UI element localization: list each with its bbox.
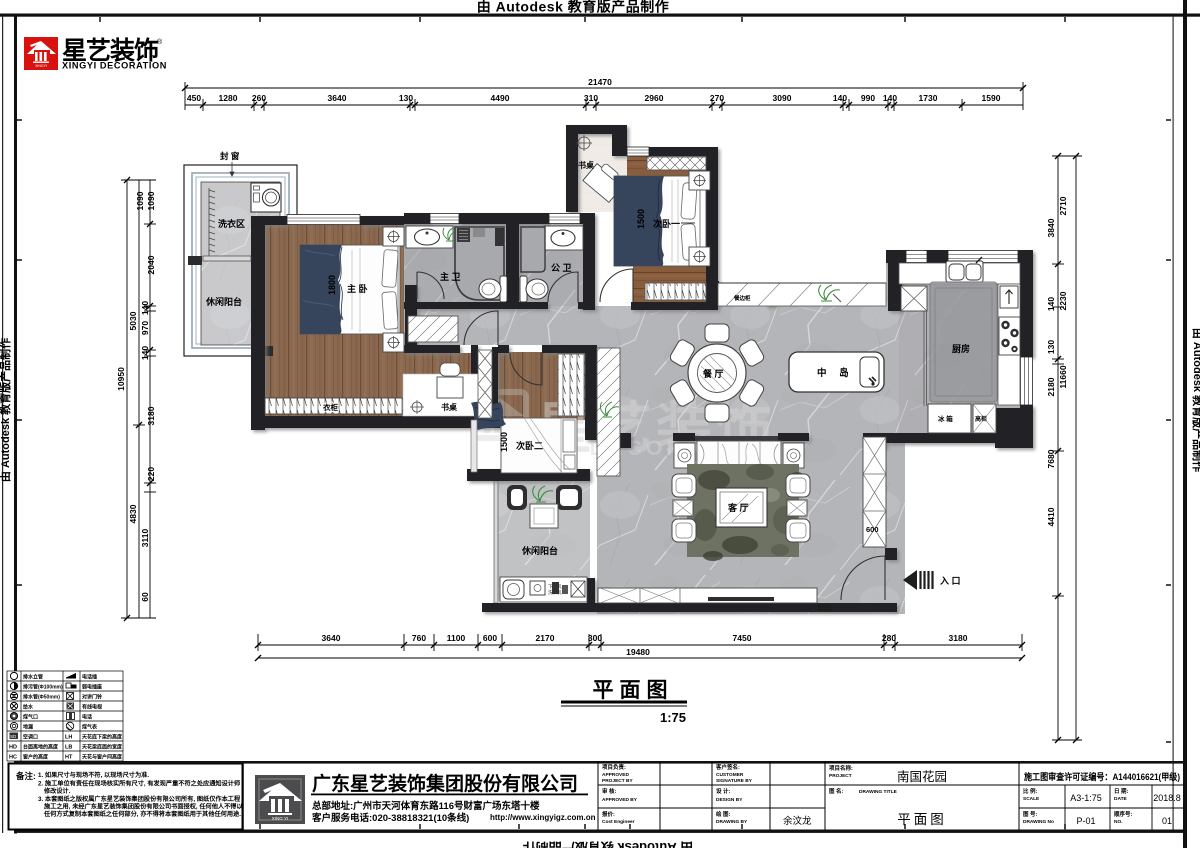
svg-text:图 号:: 图 号: bbox=[1023, 810, 1038, 818]
svg-text:绘 图:: 绘 图: bbox=[716, 810, 731, 818]
svg-text:4830: 4830 bbox=[128, 504, 138, 523]
svg-text:XINGYI DECORATION: XINGYI DECORATION bbox=[62, 61, 167, 71]
svg-text:3640: 3640 bbox=[322, 633, 341, 643]
svg-text:设 计:: 设 计: bbox=[716, 787, 731, 795]
svg-text:有线电视: 有线电视 bbox=[82, 704, 102, 711]
svg-text:电话: 电话 bbox=[82, 714, 92, 721]
svg-text:2230: 2230 bbox=[1058, 291, 1068, 310]
svg-text:7450: 7450 bbox=[733, 633, 752, 643]
svg-text:4410: 4410 bbox=[1046, 507, 1056, 526]
svg-text:SD: SD bbox=[10, 734, 17, 739]
svg-text:对讲门铃: 对讲门铃 bbox=[82, 694, 103, 701]
svg-text:760: 760 bbox=[412, 633, 426, 643]
svg-text:煤气口: 煤气口 bbox=[23, 714, 38, 721]
svg-text:书桌: 书桌 bbox=[578, 160, 595, 170]
svg-text:HC: HC bbox=[9, 755, 17, 761]
svg-text:2710: 2710 bbox=[1058, 196, 1068, 215]
svg-text:洗衣机: 洗衣机 bbox=[548, 589, 562, 596]
svg-text:2180: 2180 bbox=[1046, 377, 1056, 396]
svg-text:970: 970 bbox=[140, 321, 150, 335]
svg-text:2960: 2960 bbox=[645, 93, 664, 103]
svg-text:客户服务电话:020-38818321(10条线): 客户服务电话:020-38818321(10条线) bbox=[311, 812, 469, 824]
svg-text:310: 310 bbox=[584, 93, 598, 103]
svg-text:1500: 1500 bbox=[636, 209, 646, 229]
svg-text:备注:: 备注: bbox=[15, 771, 36, 781]
svg-text:报价:: 报价: bbox=[602, 810, 615, 818]
svg-text:弱电插座: 弱电插座 bbox=[82, 684, 102, 691]
svg-text:总部地址:广州市天河体育东路116号财富广场东塔十楼: 总部地址:广州市天河体育东路116号财富广场东塔十楼 bbox=[312, 800, 540, 812]
svg-text:280: 280 bbox=[882, 633, 896, 643]
svg-text:排水管(Φ50mm): 排水管(Φ50mm) bbox=[23, 694, 60, 701]
svg-text:140: 140 bbox=[1046, 297, 1056, 311]
svg-text:广东星艺装饰集团股份有限公司: 广东星艺装饰集团股份有限公司 bbox=[312, 772, 578, 795]
svg-text:天花与窗户间高度: 天花与窗户间高度 bbox=[82, 754, 123, 761]
svg-text:项目名称:: 项目名称: bbox=[829, 764, 853, 772]
svg-text:休闲阳台: 休闲阳台 bbox=[205, 296, 242, 307]
svg-text:施工图审查许可证编号：A144016621(甲级): 施工图审查许可证编号：A144016621(甲级) bbox=[1024, 771, 1180, 782]
svg-text:客户签名:: 客户签名: bbox=[715, 763, 740, 771]
svg-text:®: ® bbox=[157, 38, 163, 46]
svg-text:3180: 3180 bbox=[949, 633, 968, 643]
svg-text:比 例:: 比 例: bbox=[1023, 787, 1038, 795]
svg-text:A3-1:75: A3-1:75 bbox=[1070, 793, 1102, 803]
svg-text:日 期:: 日 期: bbox=[1114, 787, 1129, 795]
svg-text:1090: 1090 bbox=[146, 191, 156, 210]
svg-text:1800: 1800 bbox=[327, 275, 337, 295]
svg-text:270: 270 bbox=[710, 93, 724, 103]
svg-text:140: 140 bbox=[140, 301, 150, 315]
svg-text:HD: HD bbox=[9, 745, 17, 751]
svg-text:DRAWING TITLE: DRAWING TITLE bbox=[859, 789, 898, 795]
svg-text:施工之用, 未经广东星艺装饰集团股份有限公司书面授权, 任何: 施工之用, 未经广东星艺装饰集团股份有限公司书面授权, 任何他人不得以 bbox=[44, 803, 243, 811]
svg-text:CUSTOMER: CUSTOMER bbox=[716, 772, 744, 778]
svg-text:5030: 5030 bbox=[128, 311, 138, 330]
svg-text:01: 01 bbox=[1162, 816, 1172, 826]
svg-text:3180: 3180 bbox=[146, 406, 156, 425]
svg-text:1590: 1590 bbox=[982, 93, 1001, 103]
svg-text:P-01: P-01 bbox=[1076, 816, 1095, 826]
svg-text:排水立管: 排水立管 bbox=[23, 674, 43, 681]
svg-text:130: 130 bbox=[1046, 340, 1056, 354]
svg-text:PROJECT BY: PROJECT BY bbox=[602, 778, 633, 784]
svg-text:书桌: 书桌 bbox=[441, 402, 458, 412]
svg-text:SCALE: SCALE bbox=[1023, 796, 1040, 802]
svg-text:XING YI: XING YI bbox=[272, 816, 288, 821]
svg-text:2040: 2040 bbox=[146, 255, 156, 274]
svg-text:4490: 4490 bbox=[491, 93, 510, 103]
svg-text:10950: 10950 bbox=[116, 367, 126, 391]
svg-text:下水机: 下水机 bbox=[548, 583, 562, 590]
svg-text:平面图: 平面图 bbox=[593, 679, 674, 702]
svg-text:由 Autodesk 教育版产品制作: 由 Autodesk 教育版产品制作 bbox=[523, 840, 693, 848]
svg-text:19480: 19480 bbox=[626, 647, 650, 657]
svg-text:余汶龙: 余汶龙 bbox=[783, 815, 812, 827]
svg-text:450: 450 bbox=[187, 93, 201, 103]
svg-text:3090: 3090 bbox=[773, 93, 792, 103]
svg-text:DATE: DATE bbox=[1114, 796, 1128, 802]
svg-text:图 名:: 图 名: bbox=[829, 787, 844, 795]
svg-text:DRAWING No: DRAWING No bbox=[1023, 819, 1054, 825]
svg-text:3. 本套图纸之版权属广东星艺装饰集团股份有限公司所有, 图: 3. 本套图纸之版权属广东星艺装饰集团股份有限公司所有, 图纸仅作本工程 bbox=[38, 795, 241, 803]
svg-text:PROJECT: PROJECT bbox=[829, 773, 852, 779]
svg-text:60: 60 bbox=[140, 592, 150, 602]
svg-text:600: 600 bbox=[483, 633, 497, 643]
svg-text:2018.8: 2018.8 bbox=[1153, 793, 1181, 803]
svg-text:140: 140 bbox=[833, 93, 847, 103]
svg-text:300: 300 bbox=[588, 633, 602, 643]
svg-text:审 核:: 审 核: bbox=[602, 787, 617, 795]
svg-text:任何方式复制本套图纸之任何部分, 亦不得将本套图纸用于其他任: 任何方式复制本套图纸之任何部分, 亦不得将本套图纸用于其他任何用途. bbox=[43, 810, 241, 818]
svg-text:次卧二: 次卧二 bbox=[516, 440, 543, 451]
svg-text:顺序号:: 顺序号: bbox=[1114, 810, 1133, 818]
svg-text:餐边柜: 餐边柜 bbox=[733, 294, 751, 302]
svg-text:1:75: 1:75 bbox=[660, 710, 686, 725]
svg-text:11660: 11660 bbox=[1058, 365, 1068, 388]
svg-text:LB: LB bbox=[65, 745, 72, 751]
svg-text:入 口: 入 口 bbox=[939, 576, 961, 586]
svg-text:修改设计.: 修改设计. bbox=[43, 787, 71, 795]
svg-text:7680: 7680 bbox=[1046, 449, 1056, 468]
svg-text:http://www.xingyigz.com.on: http://www.xingyigz.com.on bbox=[490, 813, 596, 822]
svg-text:140: 140 bbox=[883, 93, 897, 103]
svg-text:140: 140 bbox=[140, 346, 150, 360]
svg-text:项目负责:: 项目负责: bbox=[602, 763, 626, 771]
svg-text:天花底下梁的高度: 天花底下梁的高度 bbox=[82, 734, 123, 741]
svg-text:SIGNATURE BY: SIGNATURE BY bbox=[716, 778, 753, 784]
svg-text:次卧一: 次卧一 bbox=[653, 218, 680, 229]
svg-text:餐 厅: 餐 厅 bbox=[702, 368, 724, 379]
svg-text:XINGYI: XINGYI bbox=[35, 64, 47, 68]
svg-text:600: 600 bbox=[866, 525, 879, 534]
svg-text:DRAWING BY: DRAWING BY bbox=[716, 819, 748, 825]
svg-text:21470: 21470 bbox=[588, 77, 612, 87]
svg-text:NO.: NO. bbox=[1114, 819, 1123, 825]
svg-text:封 窗: 封 窗 bbox=[220, 151, 240, 161]
svg-text:中 岛: 中 岛 bbox=[817, 367, 854, 379]
svg-text:窗户的高度: 窗户的高度 bbox=[23, 754, 49, 761]
svg-text:休闲阳台: 休闲阳台 bbox=[521, 545, 558, 556]
svg-text:平面图: 平面图 bbox=[897, 812, 947, 827]
svg-text:洗衣区: 洗衣区 bbox=[218, 218, 245, 229]
svg-text:1280: 1280 bbox=[219, 93, 238, 103]
svg-text:DESIGN BY: DESIGN BY bbox=[716, 797, 743, 803]
svg-text:煤气表: 煤气表 bbox=[82, 724, 98, 731]
svg-text:公 卫: 公 卫 bbox=[551, 263, 572, 273]
svg-text:220: 220 bbox=[146, 467, 156, 481]
svg-text:高柜: 高柜 bbox=[975, 415, 987, 423]
svg-text:APPROVED BY: APPROVED BY bbox=[602, 797, 638, 803]
svg-text:APPROVED: APPROVED bbox=[602, 772, 629, 778]
svg-text:给水: 给水 bbox=[23, 704, 34, 711]
svg-text:1500: 1500 bbox=[499, 432, 509, 452]
svg-text:HT: HT bbox=[65, 755, 73, 761]
svg-text:990: 990 bbox=[861, 93, 875, 103]
svg-text:衣柜: 衣柜 bbox=[323, 402, 338, 412]
svg-text:南国花园: 南国花园 bbox=[897, 769, 947, 784]
svg-text:由 Autodesk 教育版产品制作: 由 Autodesk 教育版产品制作 bbox=[0, 338, 12, 482]
svg-text:260: 260 bbox=[252, 93, 266, 103]
svg-text:2. 施工单位有责任在现场核实所有尺寸, 有发现严重不符之处: 2. 施工单位有责任在现场核实所有尺寸, 有发现严重不符之处应通知设计师 bbox=[38, 780, 240, 788]
svg-text:客 厅: 客 厅 bbox=[727, 502, 749, 513]
svg-text:由 Autodesk 教育版产品制作: 由 Autodesk 教育版产品制作 bbox=[477, 0, 670, 15]
svg-text:LH: LH bbox=[65, 735, 72, 741]
svg-text:主 卫: 主 卫 bbox=[440, 271, 461, 282]
svg-text:3640: 3640 bbox=[328, 93, 347, 103]
svg-text:厨房: 厨房 bbox=[952, 343, 970, 354]
svg-text:1090: 1090 bbox=[135, 191, 145, 210]
svg-text:冰 箱: 冰 箱 bbox=[938, 414, 953, 423]
svg-text:空调口: 空调口 bbox=[23, 734, 38, 741]
svg-text:台面离地的高度: 台面离地的高度 bbox=[23, 744, 59, 751]
svg-text:1100: 1100 bbox=[447, 633, 466, 643]
svg-text:主 卧: 主 卧 bbox=[347, 283, 368, 294]
svg-text:Cost Engineer: Cost Engineer bbox=[602, 819, 635, 825]
svg-text:由 Autodesk 教育版产品制作: 由 Autodesk 教育版产品制作 bbox=[1191, 328, 1200, 472]
svg-text:排污管(Φ100mm): 排污管(Φ100mm) bbox=[23, 684, 63, 691]
svg-text:130: 130 bbox=[399, 93, 413, 103]
svg-text:电话插: 电话插 bbox=[82, 674, 97, 681]
svg-text:1730: 1730 bbox=[919, 93, 938, 103]
svg-text:地漏: 地漏 bbox=[23, 724, 33, 731]
svg-text:3840: 3840 bbox=[1046, 218, 1056, 237]
svg-text:天花梁底面的宽度: 天花梁底面的宽度 bbox=[82, 744, 123, 751]
svg-text:2170: 2170 bbox=[536, 633, 555, 643]
svg-text:1. 如果尺寸与现场不符, 以现场尺寸为准.: 1. 如果尺寸与现场不符, 以现场尺寸为准. bbox=[38, 771, 149, 779]
svg-text:3110: 3110 bbox=[140, 529, 150, 548]
